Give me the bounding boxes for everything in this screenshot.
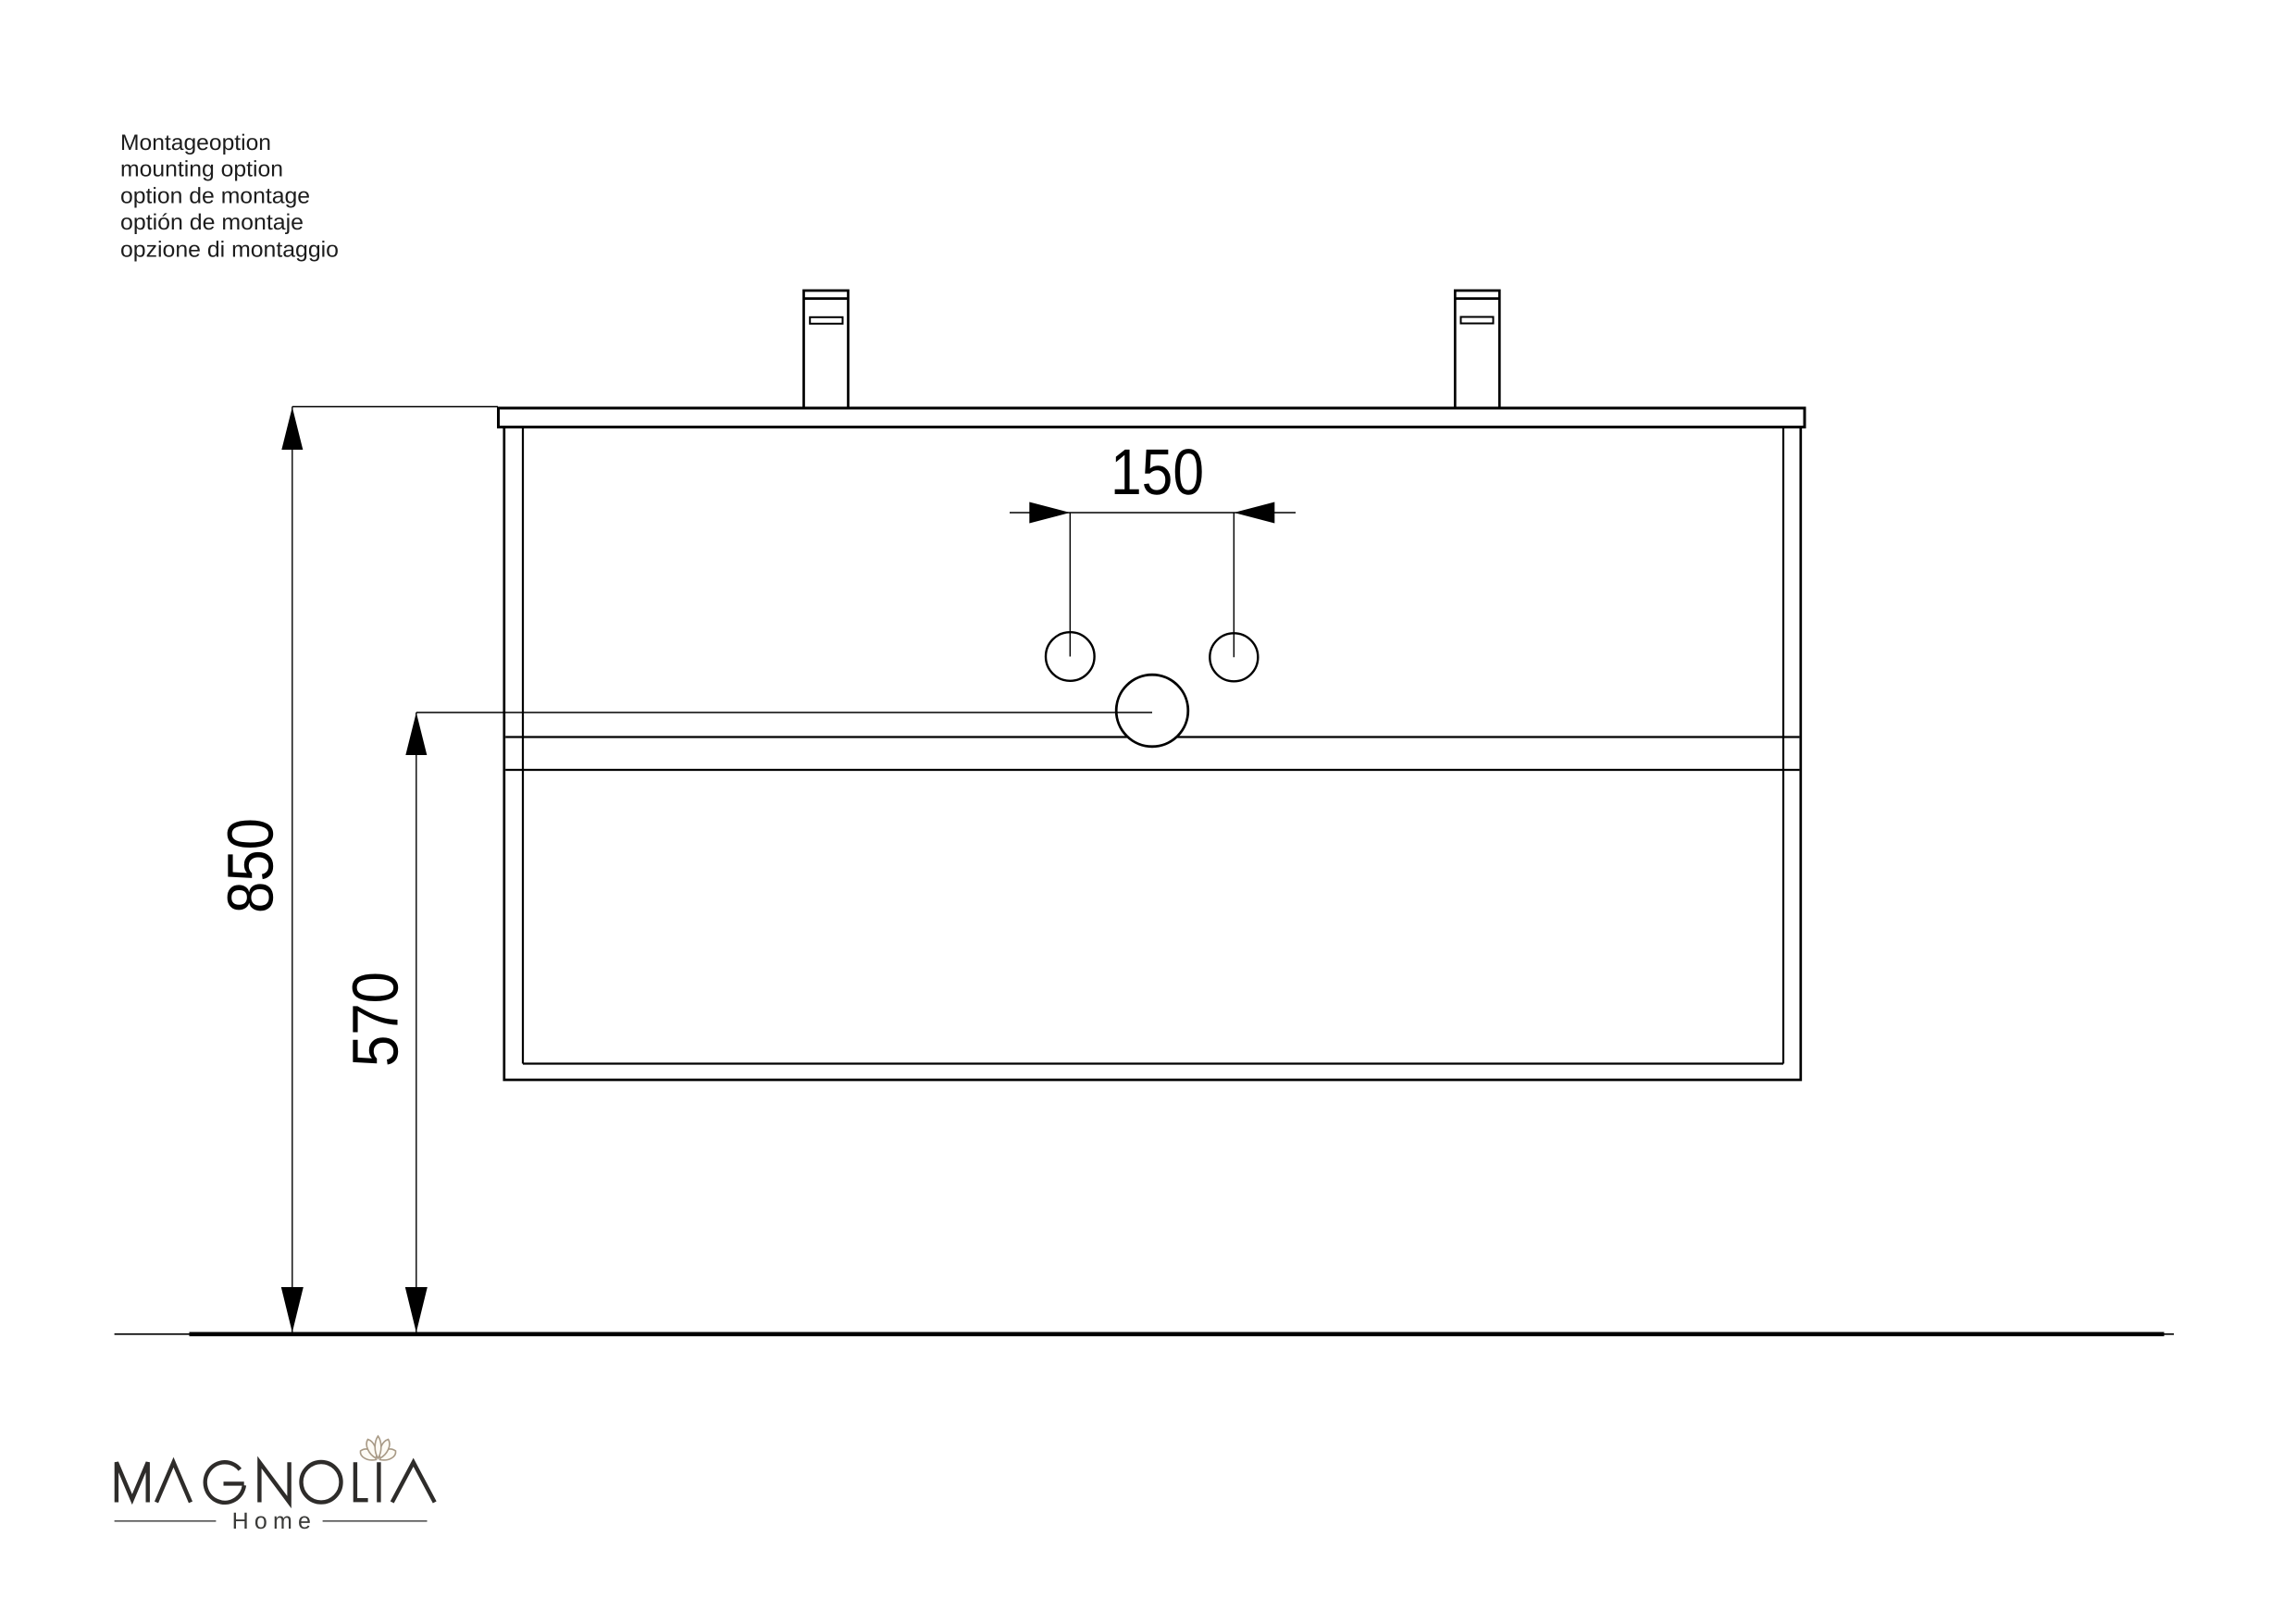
svg-text:optión de montaje: optión de montaje <box>120 210 304 235</box>
svg-text:850: 850 <box>215 818 287 913</box>
svg-text:150: 150 <box>1111 436 1204 508</box>
svg-text:570: 570 <box>339 972 411 1067</box>
svg-text:opzione di montaggio: opzione di montaggio <box>120 238 339 263</box>
svg-text:mounting option: mounting option <box>120 157 283 182</box>
svg-text:Home: Home <box>232 1508 317 1534</box>
svg-text:Montageoption: Montageoption <box>120 130 271 155</box>
svg-text:option de montage: option de montage <box>120 183 310 208</box>
